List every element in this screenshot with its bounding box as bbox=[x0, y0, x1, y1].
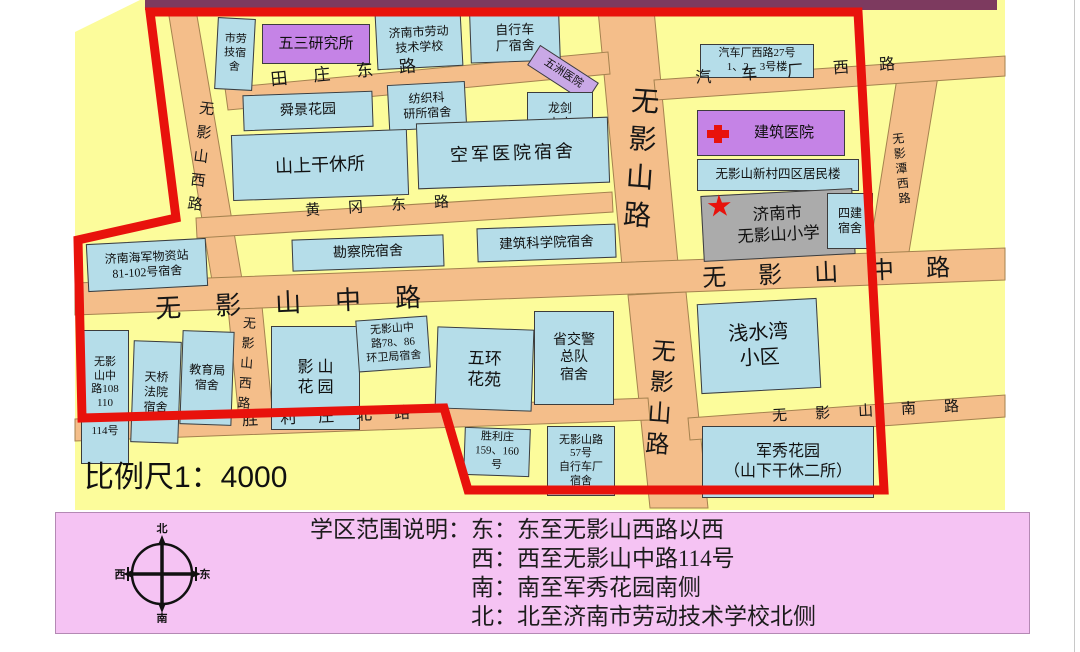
building-kanchayuan-dorm: 勘察院宿舍 bbox=[291, 234, 444, 271]
building-78-86-huanwei-dorm: 无影山中 路78、86 环卫局宿舍 bbox=[355, 316, 430, 373]
slide-edge-line bbox=[1074, 0, 1075, 652]
building-tianqiao-court-dorm: 天桥 法院 宿舍 bbox=[130, 340, 182, 444]
legend-box: 北 南 西 东 学区范围说明： 东：东至无影山西路以西 西：西至无影山中路114… bbox=[55, 512, 1030, 634]
building-label: 济南市 无影山小学 bbox=[736, 202, 821, 248]
building-108-114: 无影 山中 路108 110 112 114号 bbox=[81, 330, 129, 464]
red-cross-icon bbox=[706, 124, 730, 144]
building-airforce-hospital-dorm: 空军医院宿舍 bbox=[416, 117, 610, 190]
building-junxiu-garden: 军秀花园 （山下干休二所） bbox=[702, 426, 874, 498]
building-label: 建筑医院 bbox=[754, 124, 814, 143]
building-traffic-police-dorm: 省交警 总队 宿舍 bbox=[534, 311, 614, 405]
compass-icon: 北 南 西 东 bbox=[114, 523, 210, 623]
building-shenglizhuang-159-160: 胜利庄 159、160 号 bbox=[463, 427, 531, 477]
building-sijian-dorm: 四建 宿舍 bbox=[827, 193, 873, 249]
star-icon: ★ bbox=[705, 191, 733, 222]
building-xincun-4qu: 无影山新村四区居民楼 bbox=[697, 159, 859, 191]
district-description: 学区范围说明： 东：东至无影山西路以西 西：西至无影山中路114号 南：南至军秀… bbox=[310, 515, 816, 631]
building-shanshang-sanatorium: 山上干休所 bbox=[231, 129, 409, 201]
top-strip bbox=[145, 0, 997, 10]
building-qianshuiwan: 浅水湾 小区 bbox=[697, 298, 822, 394]
district-line-west: 西：西至无影山中路114号 bbox=[471, 544, 816, 573]
district-description-title: 学区范围说明： bbox=[310, 515, 471, 544]
building-shunjing-garden: 舜景花园 bbox=[242, 91, 373, 132]
district-line-east: 东：东至无影山西路以西 bbox=[471, 515, 816, 544]
building-education-bureau-dorm: 教育局 宿舍 bbox=[179, 330, 234, 426]
district-line-south: 南：南至军秀花园南侧 bbox=[471, 573, 816, 602]
compass-north-label: 北 bbox=[157, 523, 168, 535]
building-wuhuan-huayuan: 五环 花苑 bbox=[435, 326, 535, 411]
building-shilao-dorm: 市劳 技宿 舍 bbox=[214, 17, 256, 91]
building-navy-station-dorm: 济南海军物资站 81-102号宿舍 bbox=[86, 238, 208, 292]
building-construction-hospital: 建筑医院 bbox=[697, 110, 845, 156]
school-district-map-slide: 市劳 技宿 舍 五三研究所 济南市劳动 技术学校 自行车 厂宿舍 汽车厂西路27… bbox=[0, 0, 1080, 652]
district-line-north: 北：北至济南市劳动技术学校北侧 bbox=[471, 602, 816, 631]
compass-west-label: 西 bbox=[115, 568, 126, 581]
map-scale-label: 比例尺1：4000 bbox=[84, 452, 287, 496]
building-57-bicycle-dorm: 无影山路 57号 自行车厂 宿舍 bbox=[547, 426, 615, 496]
compass-south-label: 南 bbox=[157, 611, 168, 623]
building-construction-academy-dorm: 建筑科学院宿舍 bbox=[476, 224, 616, 263]
compass-east-label: 东 bbox=[200, 567, 211, 581]
district-description-lines: 东：东至无影山西路以西 西：西至无影山中路114号 南：南至军秀花园南侧 北：北… bbox=[471, 515, 816, 631]
